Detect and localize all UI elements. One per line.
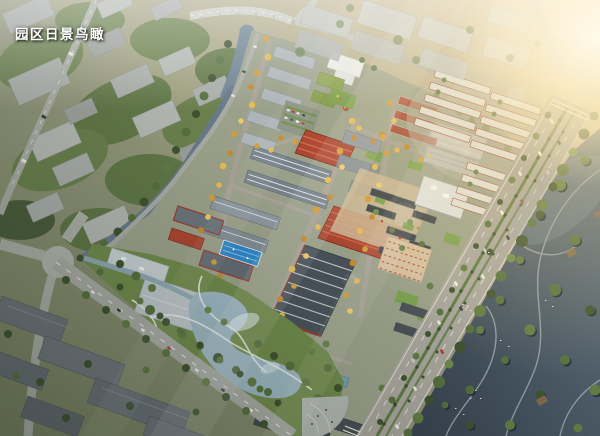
lens-flare-dot bbox=[507, 87, 525, 105]
rendering-canvas bbox=[0, 0, 600, 436]
view-title-label: 园区日景鸟瞰 bbox=[15, 23, 105, 43]
sun-glare bbox=[0, 0, 600, 436]
aerial-rendering-image: 园区日景鸟瞰 bbox=[0, 0, 600, 436]
